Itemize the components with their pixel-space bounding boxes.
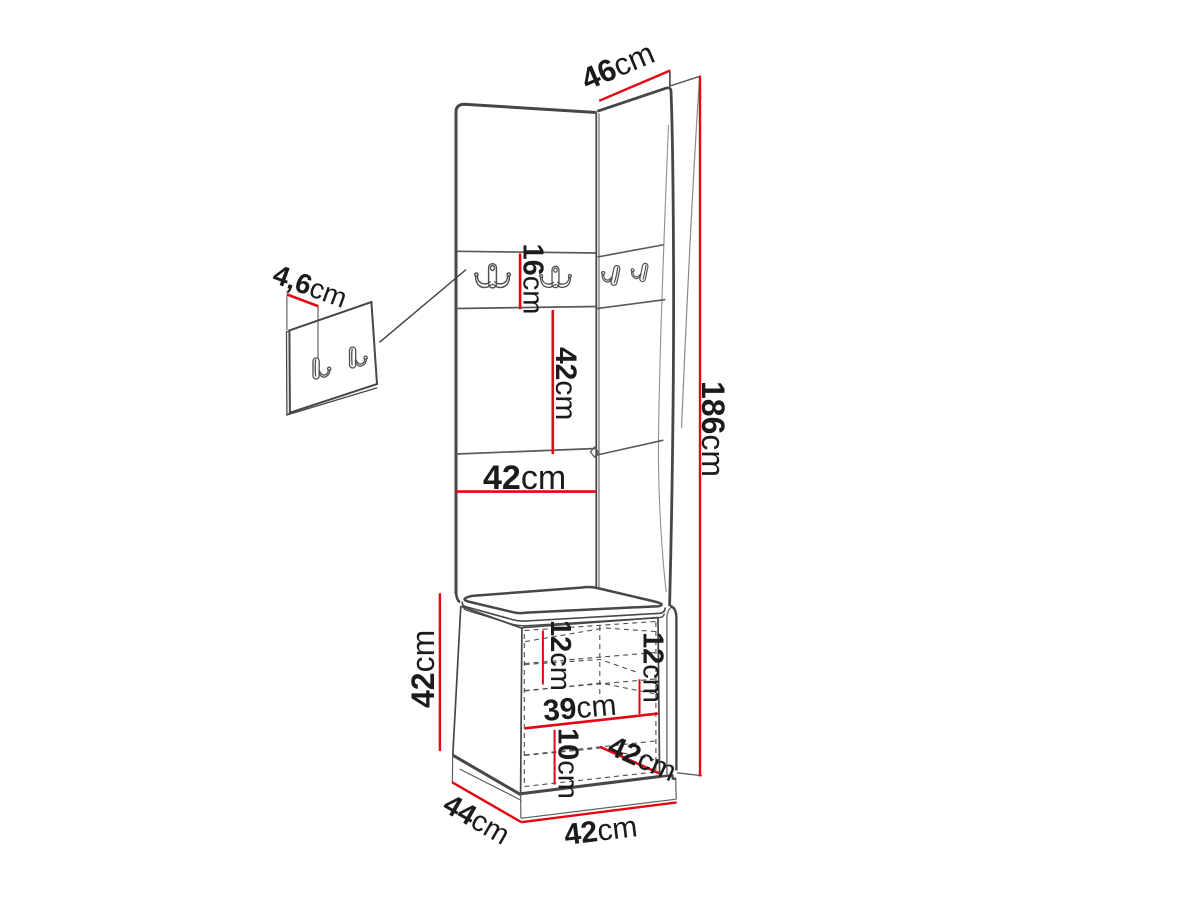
- svg-text:42cm: 42cm: [405, 630, 441, 708]
- svg-text:44cm: 44cm: [438, 788, 515, 851]
- svg-text:12cm: 12cm: [544, 620, 576, 691]
- svg-text:16cm: 16cm: [517, 244, 549, 315]
- svg-text:186cm: 186cm: [695, 381, 731, 477]
- svg-text:39cm: 39cm: [542, 689, 618, 728]
- svg-text:46cm: 46cm: [576, 35, 659, 97]
- svg-text:10cm: 10cm: [552, 728, 584, 799]
- svg-text:12cm: 12cm: [637, 632, 669, 703]
- svg-text:42cm: 42cm: [549, 347, 582, 420]
- svg-text:42cm: 42cm: [483, 459, 566, 497]
- svg-text:4,6cm: 4,6cm: [269, 259, 351, 314]
